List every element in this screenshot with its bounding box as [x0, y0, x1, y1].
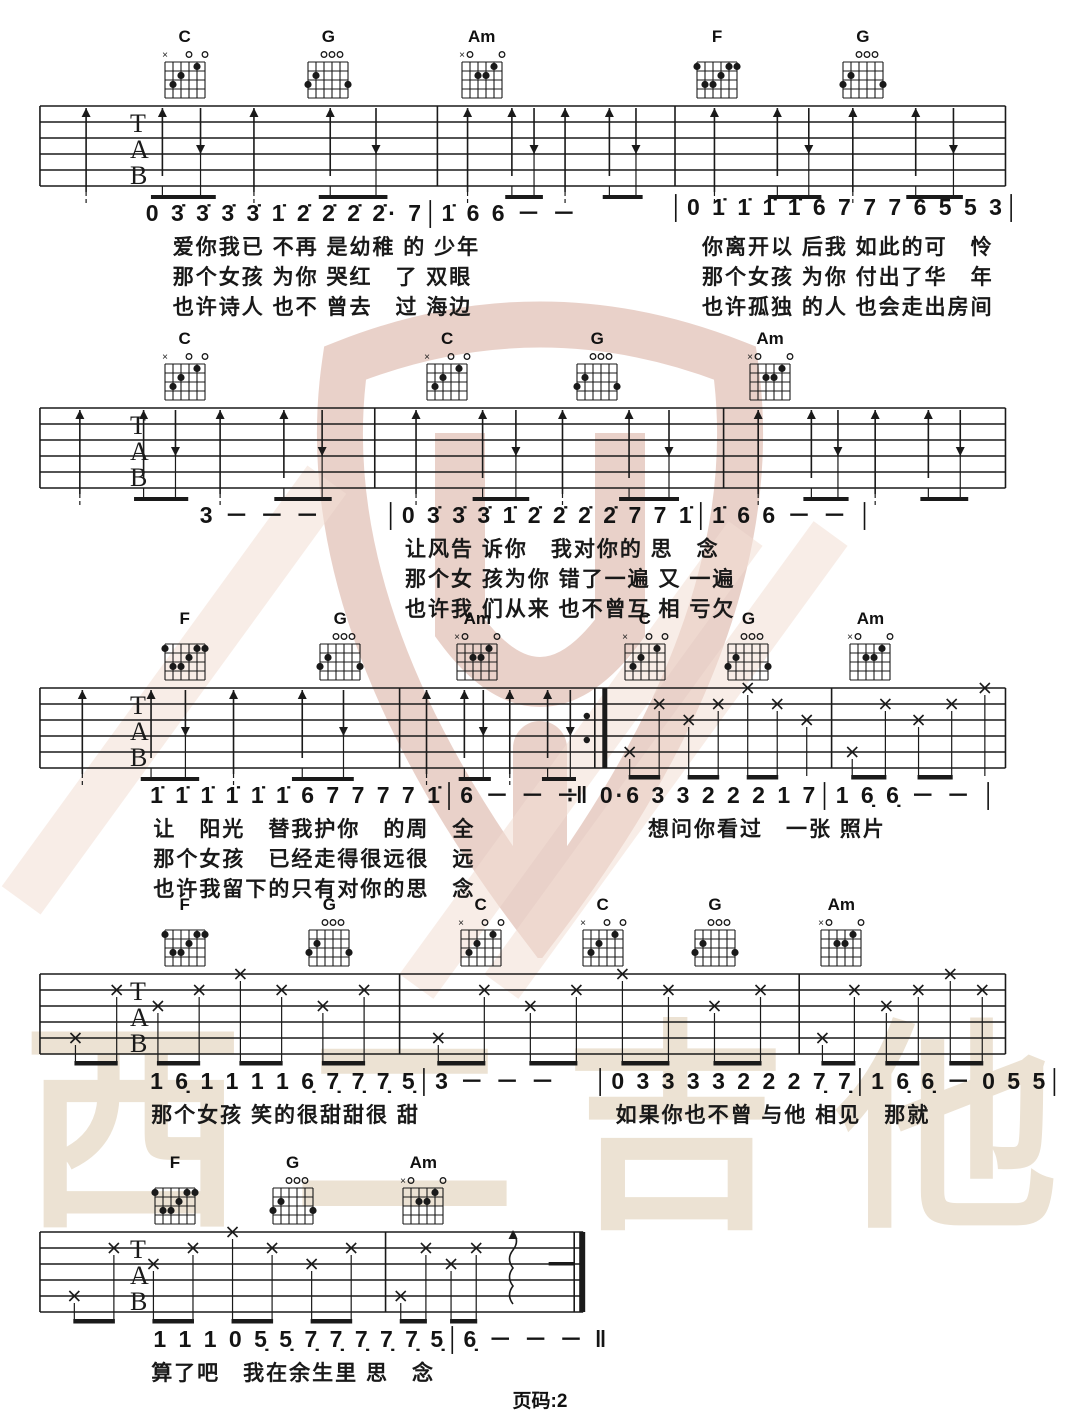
melody-segment: 3 － － －: [200, 496, 322, 530]
svg-text:×: ×: [622, 632, 628, 643]
chord-name: G: [299, 896, 359, 914]
svg-text:B: B: [130, 1287, 147, 1316]
chord-name: F: [155, 896, 215, 914]
lyric-line: 那个女孩 笑的很甜甜很 甜: [151, 1101, 420, 1131]
melody-segment: │0 3̇ 3̇ 3̇ 1̇ 2̇ 2̇ 2̇ 2̇ 7 7 1̇│1̇ 6 6…: [384, 496, 875, 530]
melody-segment: 0 3̇ 3̇ 3̇ 3̇ 1̇ 2̇ 2̇ 2̇ 2̇· 7│1̇ 6 6 －…: [146, 194, 579, 228]
system-2: C×C×GAm×TAB3 － － －│0 3̇ 3̇ 3̇ 1̇ 2̇ 2̇ 2…: [0, 330, 1080, 630]
svg-text:×: ×: [459, 50, 465, 61]
system-5: FGAm×TAB1 1 1 0 5̣ 5̣ 7̣ 7̣ 7̣ 7̣ 7̣ 5̣│…: [0, 1154, 1080, 1420]
chord-name: Am: [740, 330, 800, 348]
lyric-column: 算了吧 我在余生里 思 念: [151, 1359, 435, 1389]
svg-text:B: B: [130, 1029, 147, 1058]
lyric-line: 让 阳光 替我护你 的周 全: [153, 815, 475, 845]
chord-name: F: [145, 1154, 205, 1172]
chord-name: C: [615, 610, 675, 628]
svg-text:A: A: [130, 437, 149, 466]
chord-name: C: [451, 896, 511, 914]
melody-line: 1 1 1 0 5̣ 5̣ 7̣ 7̣ 7̣ 7̣ 7̣ 5̣│6̣ － － －…: [0, 1320, 1080, 1356]
svg-text:T: T: [130, 691, 146, 720]
lyric-line: 你离开以 后我 如此的可 怜: [702, 233, 994, 263]
svg-text:×: ×: [458, 918, 464, 929]
svg-text:×: ×: [580, 918, 586, 929]
lyric-line: 那个女孩 为你 哭红 了 双眼: [173, 263, 480, 293]
svg-text:B: B: [130, 463, 147, 492]
svg-text:A: A: [130, 1261, 149, 1290]
chord-name: G: [310, 610, 370, 628]
chord-name: G: [685, 896, 745, 914]
lyric-column: 想问你看过 一张 照片: [648, 815, 886, 845]
svg-text:B: B: [130, 743, 147, 772]
chord-name: C: [417, 330, 477, 348]
svg-text:T: T: [130, 109, 146, 138]
chord-name: F: [155, 610, 215, 628]
chord-row: C×C×GAm×: [0, 330, 1080, 396]
lyric-line: 也许孤独 的人 也会走出房间: [702, 293, 994, 323]
lyric-column: 让 阳光 替我护你 的周 全那个女孩 已经走得很远很 远也许我留下的只有对你的思…: [153, 815, 475, 905]
svg-text:B: B: [130, 161, 147, 190]
system-1: C×GAm×FGTAB0 3̇ 3̇ 3̇ 3̇ 1̇ 2̇ 2̇ 2̇ 2̇·…: [0, 28, 1080, 328]
melody-segment: 1 1 1 0 5̣ 5̣ 7̣ 7̣ 7̣ 7̣ 7̣ 5̣│6̣ － － －…: [153, 1320, 609, 1354]
lyric-line: 也许诗人 也不 曾去 过 海边: [173, 293, 480, 323]
chord-name: G: [263, 1154, 323, 1172]
melody-segment: │0 1̇ 1̇ 1̇ 1̇ 6 7 7 7 6 5 5 3│: [670, 194, 1023, 221]
melody-line: 1̇ 1̇ 1̇ 1̇ 1̇ 1̇ 6 7 7 7 7 1̇│6 － － －∶‖…: [0, 776, 1080, 812]
lyric-line: 那个女孩 为你 付出了华 年: [702, 263, 994, 293]
svg-text:×: ×: [400, 1176, 406, 1187]
lyric-line: 算了吧 我在余生里 思 念: [151, 1359, 435, 1389]
chord-row: FGAm×C×GAm×: [0, 610, 1080, 676]
melody-segment: │0 3 3 3 3 2 2 2 7̣ 7̣│1 6̣ 6̣ － 0 5 5│: [594, 1062, 1066, 1096]
svg-text:×: ×: [162, 352, 168, 363]
melody-line: 1 6̣ 1 1 1 1 6̣ 7̣ 7̣ 7̣ 5̣│3 － － －│0 3 …: [0, 1062, 1080, 1098]
lyric-line: 那个女孩 已经走得很远很 远: [153, 845, 475, 875]
svg-text:×: ×: [454, 632, 460, 643]
melody-segment: 1̇ 1̇ 1̇ 1̇ 1̇ 1̇ 6 7 7 7 7 1̇│6 － － －: [150, 776, 582, 810]
chord-name: F: [687, 28, 747, 46]
svg-text:T: T: [130, 977, 146, 1006]
lyric-column: 如果你也不曾 与他 相见 那就: [616, 1101, 931, 1131]
lyric-line: 如果你也不曾 与他 相见 那就: [616, 1101, 931, 1131]
chord-name: C: [155, 330, 215, 348]
svg-text:T: T: [130, 1235, 146, 1264]
system-3: FGAm×C×GAm×TAB1̇ 1̇ 1̇ 1̇ 1̇ 1̇ 6 7 7 7 …: [0, 610, 1080, 910]
chord-name: C: [155, 28, 215, 46]
chord-name: Am: [452, 28, 512, 46]
lyric-column: 那个女孩 笑的很甜甜很 甜: [151, 1101, 420, 1131]
lyric-column: 你离开以 后我 如此的可 怜那个女孩 为你 付出了华 年也许孤独 的人 也会走出…: [702, 233, 994, 323]
chord-name: Am: [393, 1154, 453, 1172]
svg-text:×: ×: [162, 50, 168, 61]
svg-text:×: ×: [818, 918, 824, 929]
melody-segment: ∶‖ 0·6 3 3 2 2 2 1 7│1 6̣ 6̣ － － │: [567, 776, 999, 810]
lyric-line: 那个女 孩为你 错了一遍 又 一遍: [405, 565, 735, 595]
chord-name: G: [567, 330, 627, 348]
melody-line: 3 － － －│0 3̇ 3̇ 3̇ 1̇ 2̇ 2̇ 2̇ 2̇ 7 7 1̇…: [0, 496, 1080, 532]
chord-name: G: [833, 28, 893, 46]
lyric-column: 爱你我已 不再 是幼稚 的 少年那个女孩 为你 哭红 了 双眼也许诗人 也不 曾…: [173, 233, 480, 323]
melody-line: 0 3̇ 3̇ 3̇ 3̇ 1̇ 2̇ 2̇ 2̇ 2̇· 7│1̇ 6 6 －…: [0, 194, 1080, 230]
chord-name: G: [718, 610, 778, 628]
chord-row: FGC×C×GAm×: [0, 896, 1080, 962]
chord-name: Am: [840, 610, 900, 628]
sheet-music-page: 西二吉他 C×GAm×FGTAB0 3̇ 3̇ 3̇ 3̇ 1̇ 2̇ 2̇ 2…: [0, 0, 1080, 1420]
chord-name: C: [573, 896, 633, 914]
svg-text:A: A: [130, 717, 149, 746]
lyric-line: 爱你我已 不再 是幼稚 的 少年: [173, 233, 480, 263]
chord-name: Am: [447, 610, 507, 628]
lyric-line: 想问你看过 一张 照片: [648, 815, 886, 845]
svg-text:×: ×: [424, 352, 430, 363]
chord-name: Am: [811, 896, 871, 914]
melody-segment: 1 6̣ 1 1 1 1 6̣ 7̣ 7̣ 7̣ 5̣│3 － － －: [150, 1062, 557, 1096]
lyric-line: 让风告 诉你 我对你的 思 念: [405, 535, 735, 565]
svg-text:A: A: [130, 1003, 149, 1032]
svg-text:A: A: [130, 135, 149, 164]
page-number: 页码:2: [0, 1386, 1080, 1413]
chord-name: G: [298, 28, 358, 46]
chord-row: C×GAm×FG: [0, 28, 1080, 94]
chord-row: FGAm×: [0, 1154, 1080, 1220]
svg-text:×: ×: [848, 632, 854, 643]
system-4: FGC×C×GAm×TAB1 6̣ 1 1 1 1 6̣ 7̣ 7̣ 7̣ 5̣…: [0, 896, 1080, 1196]
svg-text:×: ×: [747, 352, 753, 363]
